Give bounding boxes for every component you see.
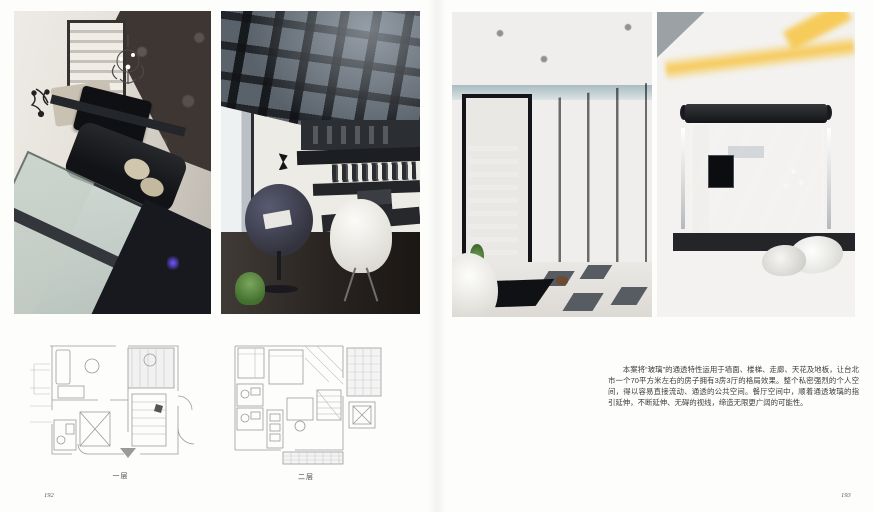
plan-level-2-label: 二层 xyxy=(225,472,387,482)
chandelier-icon xyxy=(105,35,151,99)
chair-shell xyxy=(330,199,392,273)
photo-bedroom-cove-light xyxy=(657,12,855,317)
sheer-curtain xyxy=(692,125,710,235)
left-page-number: 192 xyxy=(44,492,54,499)
wall-sconce-icon xyxy=(28,87,54,119)
book-spread: 一层 xyxy=(0,0,874,512)
chair-leg xyxy=(344,267,357,301)
chair-base xyxy=(260,285,298,293)
books-row xyxy=(332,161,416,182)
floor-plan-level-1-drawing xyxy=(28,336,213,468)
vertical-lamp xyxy=(827,128,831,229)
photo-hallway-wardrobe xyxy=(452,12,652,317)
photo-study-room xyxy=(221,11,420,314)
right-page-number: 193 xyxy=(841,492,851,499)
ceiling-downlights xyxy=(452,12,652,88)
floor-plan-level-1 xyxy=(28,336,213,468)
black-roller-blind xyxy=(685,104,828,124)
white-shell-chair xyxy=(330,199,392,302)
chair-leg xyxy=(366,267,379,301)
photo-stairwell-living-room xyxy=(14,11,211,314)
chair-stem xyxy=(277,251,282,279)
purple-accent-light xyxy=(167,254,179,272)
floor-plan-level-2-drawing xyxy=(225,338,387,466)
plan-level-1-label: 一层 xyxy=(28,471,213,481)
small-tv xyxy=(708,155,734,188)
shoe xyxy=(556,276,568,285)
potted-plant xyxy=(235,272,265,305)
article-body-text: 本案将“玻璃”的通透特性运用于墙面、楼梯、走廊、天花及地板，让台北市一个70平方… xyxy=(608,364,859,408)
shelf-decor xyxy=(313,126,393,144)
vertical-lamp xyxy=(681,128,685,229)
page-spine-shadow xyxy=(428,0,446,512)
floor-plan-level-2 xyxy=(225,338,387,466)
